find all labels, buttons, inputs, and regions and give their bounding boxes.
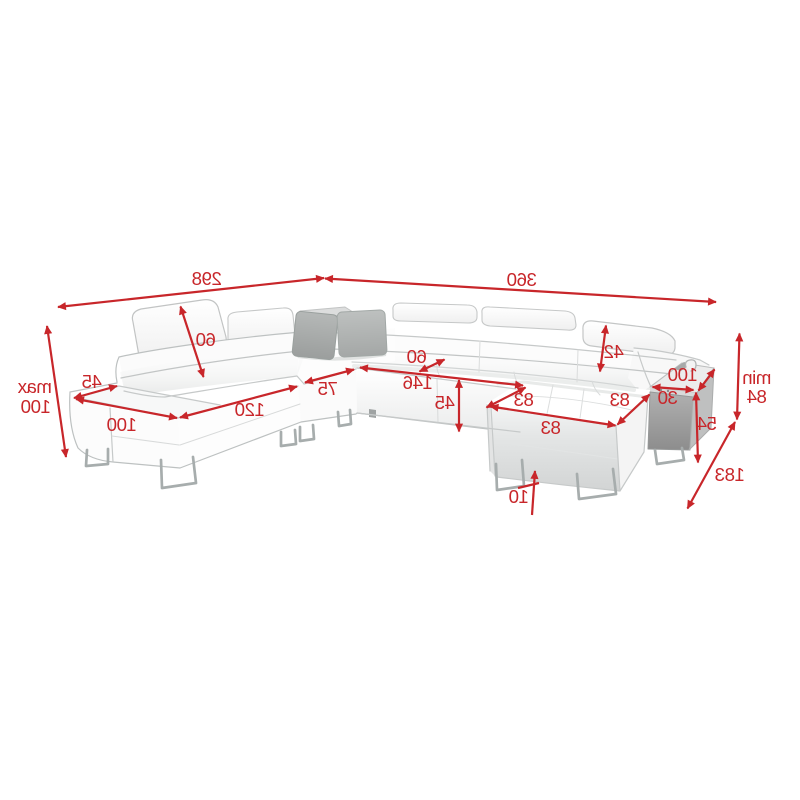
svg-text:83: 83 — [514, 389, 534, 410]
svg-text:54: 54 — [697, 413, 717, 434]
svg-text:120: 120 — [235, 399, 265, 420]
svg-text:60: 60 — [407, 346, 427, 367]
svg-text:100: 100 — [668, 364, 698, 385]
svg-text:83: 83 — [541, 417, 561, 438]
svg-text:360: 360 — [507, 269, 537, 290]
svg-text:10: 10 — [509, 486, 529, 507]
svg-text:83: 83 — [610, 389, 630, 410]
svg-text:100: 100 — [21, 396, 51, 417]
svg-text:75: 75 — [318, 378, 338, 399]
svg-text:146: 146 — [403, 372, 433, 393]
svg-text:60: 60 — [196, 329, 216, 350]
svg-text:30: 30 — [658, 387, 678, 408]
svg-text:100: 100 — [107, 414, 137, 435]
svg-text:183: 183 — [715, 464, 745, 485]
svg-text:45: 45 — [82, 371, 102, 392]
svg-text:42: 42 — [604, 341, 624, 362]
svg-text:min: min — [743, 367, 772, 388]
svg-text:max: max — [17, 376, 52, 397]
svg-text:45: 45 — [435, 392, 455, 413]
svg-text:84: 84 — [747, 386, 767, 407]
svg-text:298: 298 — [192, 268, 222, 289]
